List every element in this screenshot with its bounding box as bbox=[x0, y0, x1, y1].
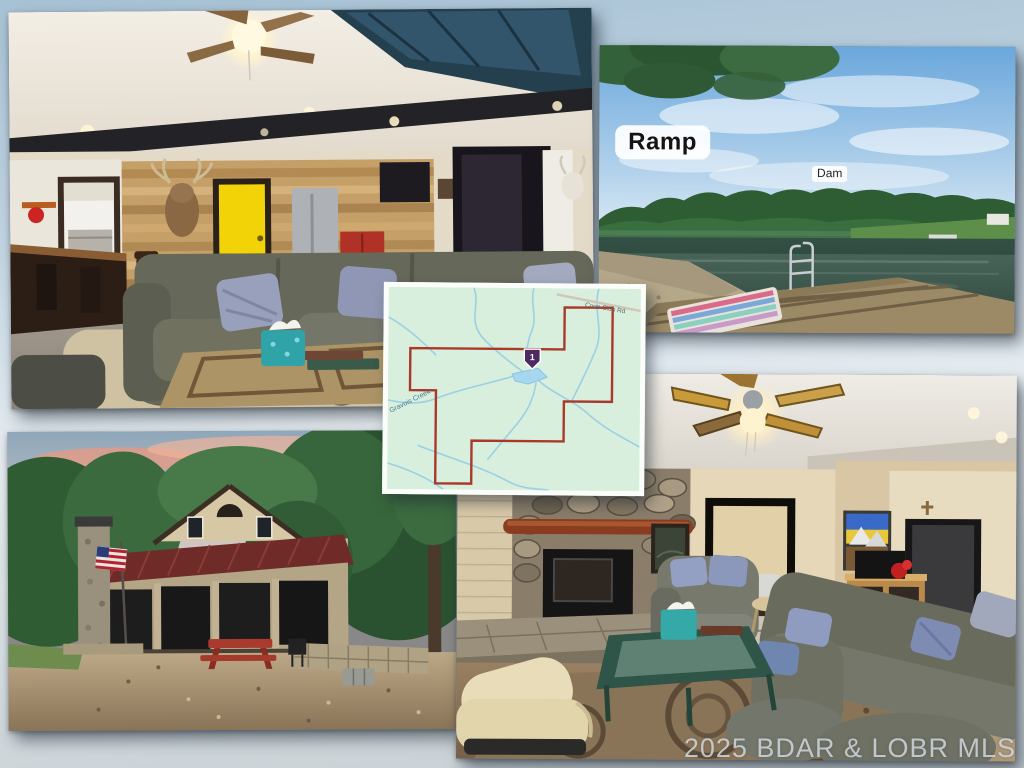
map-land bbox=[387, 287, 641, 491]
ottoman bbox=[11, 355, 105, 410]
dam-label: Dam bbox=[812, 166, 847, 182]
map-marker-label: 1 bbox=[530, 352, 535, 362]
mls-watermark: 2025 BDAR & LOBR MLS bbox=[684, 733, 1016, 764]
photo-lake: Ramp Dam bbox=[598, 45, 1015, 334]
bar-counter bbox=[10, 243, 127, 334]
ramp-label: Ramp bbox=[615, 125, 710, 159]
mls-photo-collage: Ramp Dam bbox=[0, 0, 1024, 768]
plat-map-overlay: 1 Coon Club Rd Gravois Creek bbox=[382, 282, 646, 496]
chimney bbox=[75, 517, 114, 664]
